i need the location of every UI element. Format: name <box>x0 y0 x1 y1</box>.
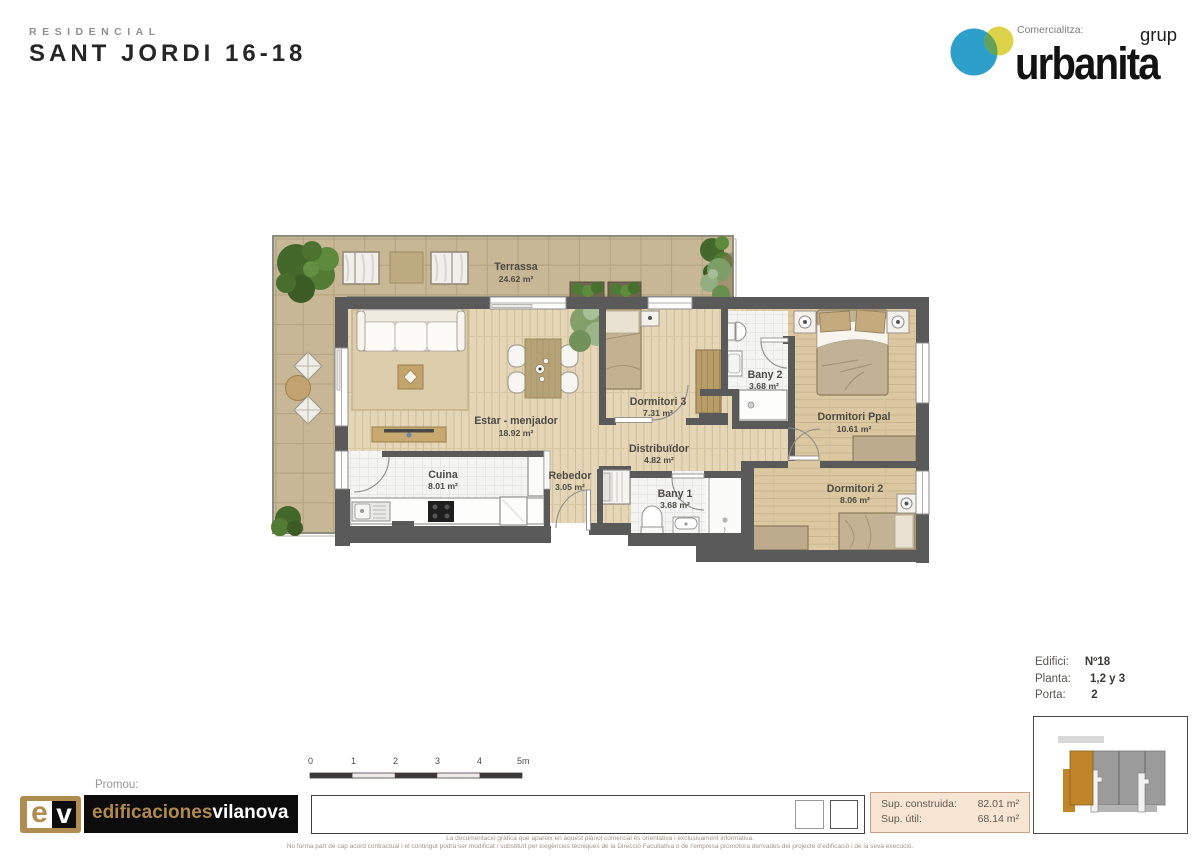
svg-text:0: 0 <box>308 756 313 766</box>
svg-text:5m: 5m <box>517 756 530 766</box>
svg-text:Cuina: Cuina <box>428 469 458 481</box>
svg-text:Dormitori 3: Dormitori 3 <box>630 396 687 408</box>
svg-text:8.01 m²: 8.01 m² <box>428 481 458 491</box>
svg-text:24.62 m²: 24.62 m² <box>499 274 534 284</box>
svg-text:1: 1 <box>351 756 356 766</box>
svg-text:3.68 m²: 3.68 m² <box>749 381 779 391</box>
svg-text:Distribuïdor: Distribuïdor <box>629 443 689 455</box>
svg-text:3.68 m²: 3.68 m² <box>660 500 690 510</box>
svg-text:Bany 1: Bany 1 <box>658 488 693 500</box>
svg-text:10.61 m²: 10.61 m² <box>837 424 872 434</box>
svg-text:3.05 m²: 3.05 m² <box>555 482 585 492</box>
svg-text:18.92 m²: 18.92 m² <box>499 428 534 438</box>
svg-text:8.06 m²: 8.06 m² <box>840 495 870 505</box>
svg-text:7.31 m²: 7.31 m² <box>643 408 673 418</box>
svg-text:4.82 m²: 4.82 m² <box>644 455 674 465</box>
svg-text:Rebedor: Rebedor <box>549 470 592 482</box>
svg-text:Dormitori Ppal: Dormitori Ppal <box>818 411 891 423</box>
svg-text:3: 3 <box>435 756 440 766</box>
svg-text:Dormitori 2: Dormitori 2 <box>827 483 884 495</box>
svg-text:Terrassa: Terrassa <box>494 261 537 273</box>
svg-text:2: 2 <box>393 756 398 766</box>
svg-text:4: 4 <box>477 756 482 766</box>
svg-text:Bany 2: Bany 2 <box>748 369 783 381</box>
svg-text:Estar - menjador: Estar - menjador <box>474 415 558 427</box>
